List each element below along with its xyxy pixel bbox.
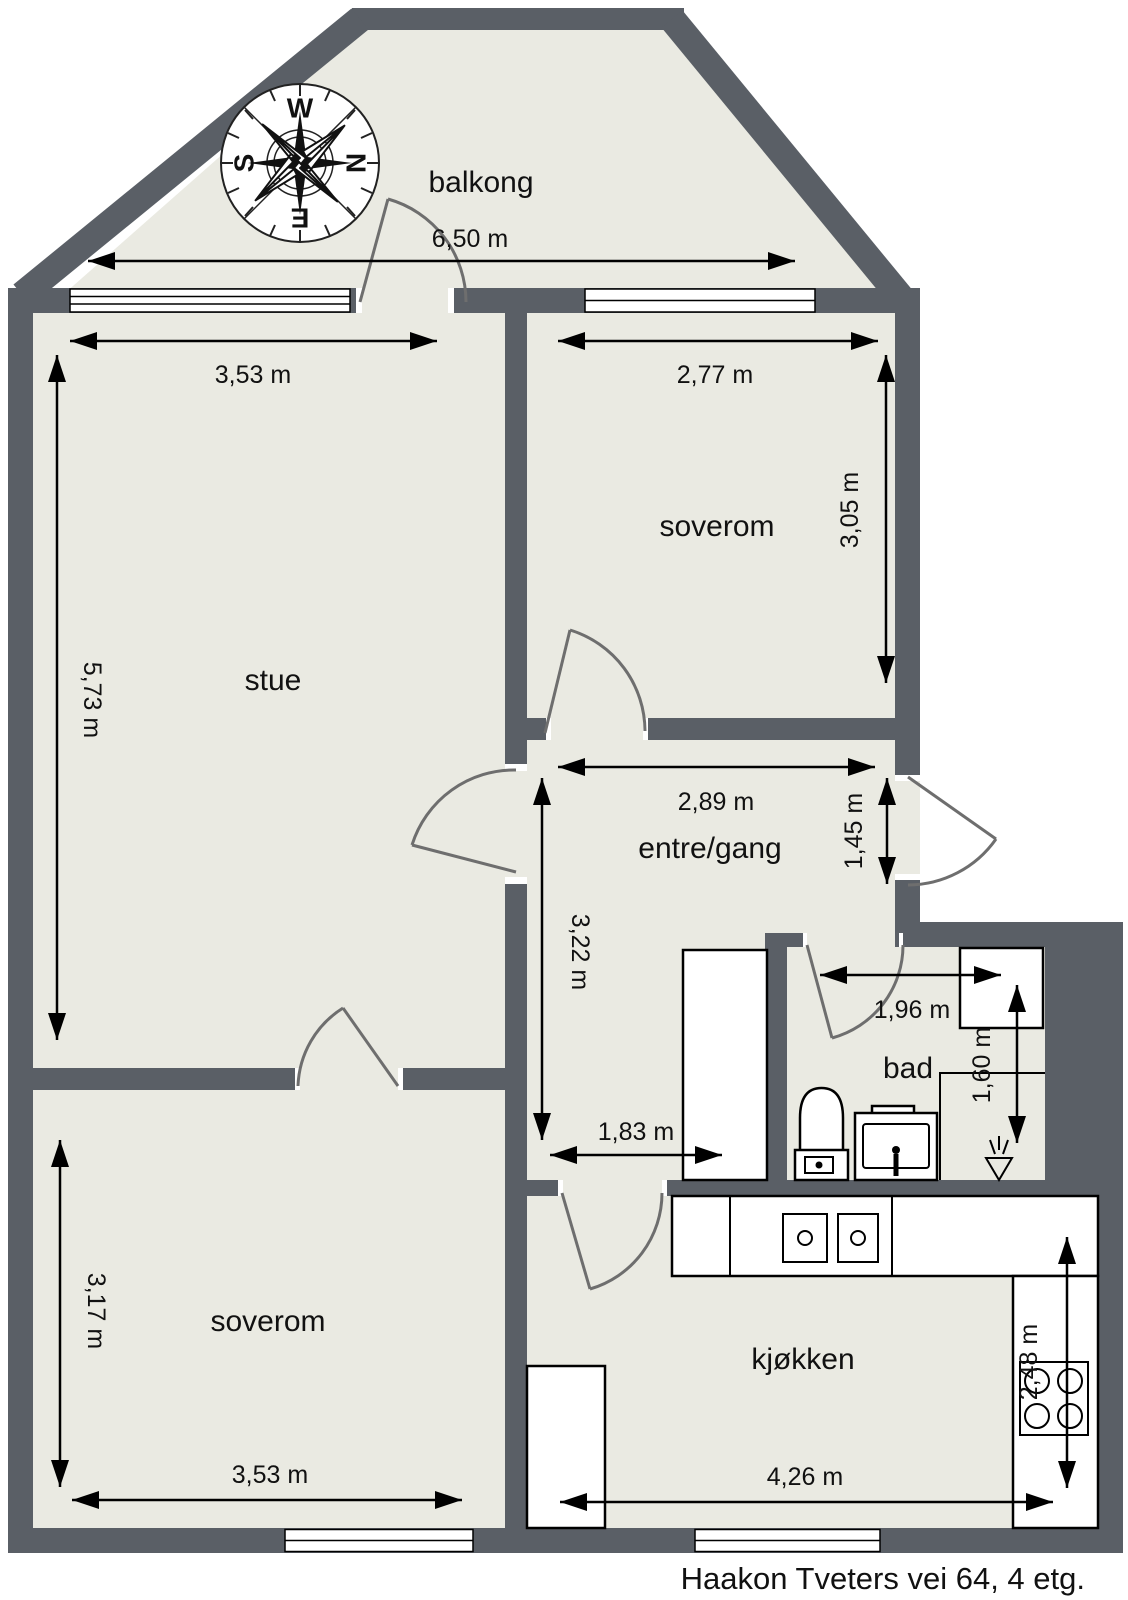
kitchen-counter-right <box>1013 1276 1098 1528</box>
wall-bottom <box>8 1528 1123 1553</box>
window-soverom1 <box>585 289 815 312</box>
dimension-label: 3,53 m <box>215 361 291 389</box>
window-stue <box>70 289 350 312</box>
dimension-label: 4,26 m <box>767 1463 843 1491</box>
dimension-label: 2,89 m <box>678 788 754 816</box>
dimension-label: 3,22 m <box>566 914 594 990</box>
compass-rose-icon: W N E S <box>221 84 379 242</box>
dimension-label: 2,77 m <box>677 361 753 389</box>
shower-cabinet-icon <box>960 948 1043 1028</box>
dimension-label: 3,05 m <box>836 472 864 548</box>
address-footer: Haakon Tveters vei 64, 4 etg. <box>681 1561 1085 1596</box>
wall-stue-soverom2 <box>33 1068 295 1090</box>
wall-bad-kjokken <box>667 1180 1045 1196</box>
room-label-kjokken: kjøkken <box>751 1343 854 1376</box>
dimension-label: 1,83 m <box>598 1118 674 1146</box>
window-kjokken <box>695 1530 880 1552</box>
dimension-label: 5,73 m <box>78 662 106 738</box>
wall-bad-top-stub <box>765 933 807 947</box>
wall-right-lower <box>1098 947 1123 1553</box>
wall-stue-soverom <box>505 313 527 770</box>
wall-soverom1-entre <box>648 718 920 740</box>
dimension-label: 3,17 m <box>82 1273 110 1349</box>
door-entrance <box>908 777 996 885</box>
wall-left <box>8 288 33 1553</box>
opening-balcony-door <box>362 288 448 313</box>
compass-letter-w: W <box>287 93 314 124</box>
compass-letter-n: N <box>341 153 372 173</box>
compass-letter-e: E <box>291 203 310 234</box>
dimension-label: 6,50 m <box>432 225 508 253</box>
compass-letter-s: S <box>229 154 260 173</box>
wall-right-upper <box>895 300 920 775</box>
wall-stue-gang <box>505 884 527 1528</box>
dimension-label: 3,53 m <box>232 1461 308 1489</box>
dimension-label: 2,48 m <box>1015 1324 1043 1400</box>
toilet-icon <box>795 1088 848 1180</box>
floors <box>33 26 1098 1530</box>
room-label-stue: stue <box>245 664 302 697</box>
kitchen-counter <box>672 1196 1098 1276</box>
dimension-label: 1,96 m <box>874 996 950 1024</box>
floorplan-svg: W N E S 6,50 m 3,53 m 5,73 m 2,77 m 3,05… <box>0 0 1128 1600</box>
dimension-label: 1,45 m <box>840 793 868 869</box>
room-label-entre: entre/gang <box>638 832 781 865</box>
opening-entrance-door <box>895 775 920 880</box>
room-label-balkong: balkong <box>428 166 533 199</box>
room-label-soverom-2: soverom <box>210 1305 325 1338</box>
fridge-icon <box>527 1366 605 1528</box>
bathroom-sink-icon <box>855 1106 937 1180</box>
wall-gang-bad <box>765 935 787 1180</box>
dimension-label: 1,60 m <box>968 1027 996 1103</box>
wall-extension-top <box>905 922 1123 947</box>
floorplan-page: W N E S 6,50 m 3,53 m 5,73 m 2,77 m 3,05… <box>0 0 1128 1600</box>
room-label-soverom-1: soverom <box>659 510 774 543</box>
room-label-bad: bad <box>883 1052 933 1085</box>
window-soverom2 <box>285 1530 473 1552</box>
wardrobe-cabinet <box>683 950 767 1180</box>
